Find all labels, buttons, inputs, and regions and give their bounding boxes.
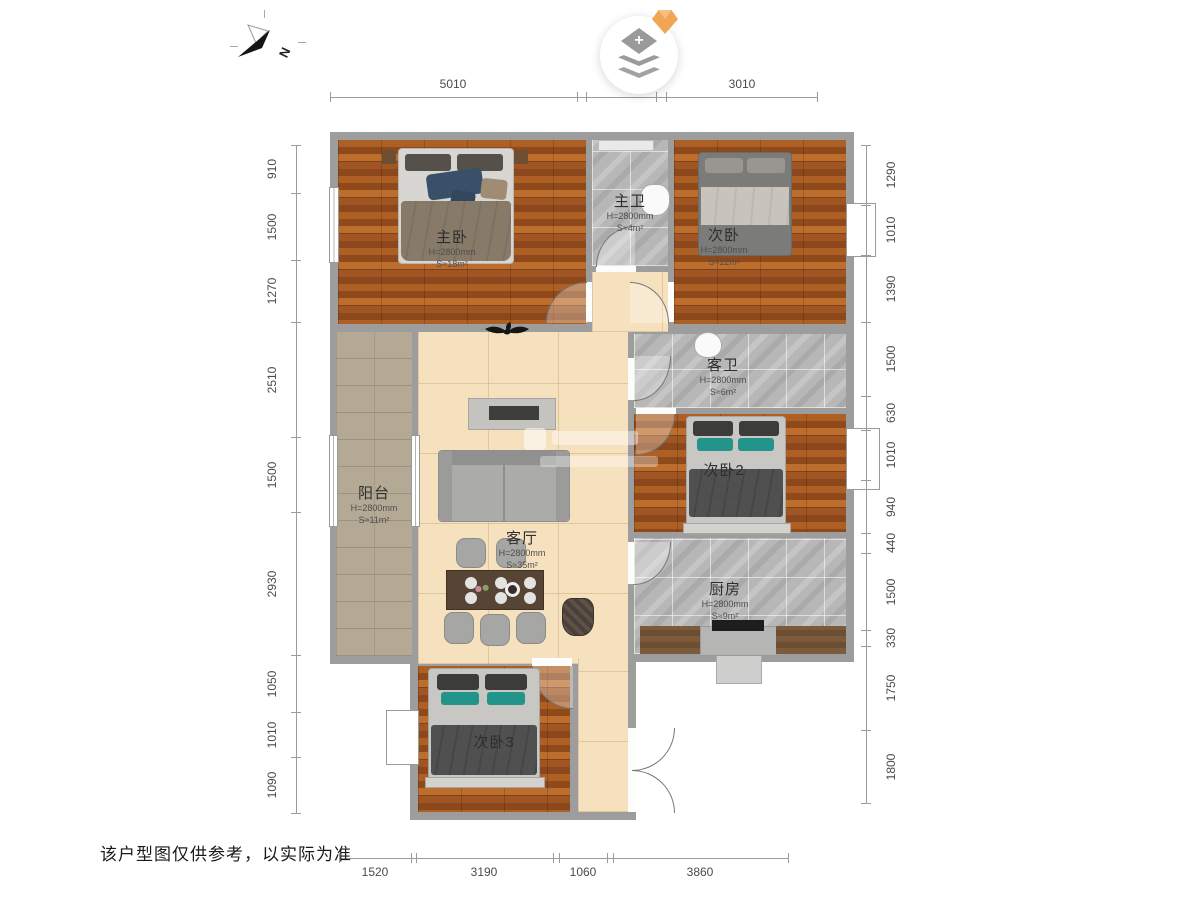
bath-shelf xyxy=(598,140,654,151)
sofa-arm xyxy=(439,451,452,521)
dim-right-11: 1800 xyxy=(884,754,898,781)
dim-top-0: 5010 xyxy=(440,77,467,91)
logo-badge[interactable]: + xyxy=(600,16,678,94)
cushion xyxy=(480,178,508,201)
room-label-guest-bath: 客卫 H=2800mm S≈6m² xyxy=(700,354,747,398)
dim-right-9: 330 xyxy=(884,628,898,648)
room-area: S≈10m² xyxy=(701,492,748,504)
dim-left-1: 1500 xyxy=(265,214,279,241)
watermark-logo xyxy=(524,428,546,450)
ruler-top xyxy=(330,97,817,98)
room-height: H=2800mm xyxy=(499,548,546,560)
dining-chair xyxy=(516,612,546,644)
plus-icon: + xyxy=(634,33,643,49)
room-name: 客卫 xyxy=(700,354,747,375)
door-gap-bedroom2 xyxy=(668,282,674,322)
pillow xyxy=(405,154,451,171)
room-area: S≈4m² xyxy=(607,223,654,235)
room-label-balcony: 阳台 H=2800mm S≈11m² xyxy=(351,482,398,526)
dim-right-4: 630 xyxy=(884,403,898,423)
appliance-box xyxy=(716,654,762,684)
room-name: 次卧2 xyxy=(701,459,748,480)
entry-floor xyxy=(578,658,628,812)
pillow-teal xyxy=(697,438,733,451)
room-label-living: 客厅 H=2800mm S≈35m² xyxy=(499,527,546,571)
dim-left-0: 910 xyxy=(265,159,279,179)
room-area: S≈18m² xyxy=(429,259,476,271)
room-height: H=2800mm xyxy=(429,247,476,259)
dim-right-10: 1750 xyxy=(884,675,898,702)
dim-bottom-0: 1520 xyxy=(362,865,389,879)
dining-chair xyxy=(480,614,510,646)
tv xyxy=(489,406,539,420)
room-label-bedroom3: 次卧3 H=2800mm S≈10m² xyxy=(471,731,518,775)
door-gap-bedroom3 xyxy=(532,658,572,666)
dining-chair xyxy=(444,612,474,644)
dim-bottom-1: 3190 xyxy=(471,865,498,879)
floor-plan-page: 主卧 H=2800mm S≈18m² 主卫 H=2800mm S≈4m² 次卧 … xyxy=(0,0,1200,900)
room-area: S≈35m² xyxy=(499,560,546,572)
pillow xyxy=(705,158,743,173)
dim-right-5: 1010 xyxy=(884,442,898,469)
room-height: H=2800mm xyxy=(351,503,398,515)
footboard xyxy=(425,777,545,788)
dim-right-2: 1390 xyxy=(884,276,898,303)
dim-left-7: 1010 xyxy=(265,722,279,749)
dim-right-8: 1500 xyxy=(884,579,898,606)
pillow xyxy=(437,674,479,690)
pillow xyxy=(485,674,527,690)
dim-right-3: 1500 xyxy=(884,346,898,373)
dining-table xyxy=(446,570,544,610)
pillow xyxy=(739,421,779,436)
room-height: H=2800mm xyxy=(701,245,748,257)
pillow-teal xyxy=(738,438,774,451)
door-arc-entrance-bottom xyxy=(632,770,675,813)
room-height: H=2800mm xyxy=(471,752,518,764)
bay-window-bedroom3 xyxy=(386,710,419,765)
window-balcony-left xyxy=(329,435,338,527)
dim-bottom-2: 1060 xyxy=(570,865,597,879)
pillow xyxy=(693,421,733,436)
ceiling-fan-icon xyxy=(484,322,530,342)
dim-right-7: 440 xyxy=(884,533,898,553)
bay-window-bedroom2 xyxy=(846,203,876,257)
room-area: S≈10m² xyxy=(471,764,518,776)
dim-left-4: 1500 xyxy=(265,462,279,489)
dim-right-1: 1010 xyxy=(884,217,898,244)
window-balcony-partition xyxy=(411,435,420,527)
pillow xyxy=(747,158,785,173)
room-height: H=2800mm xyxy=(700,375,747,387)
dim-left-5: 2930 xyxy=(265,571,279,598)
north-arrow-icon xyxy=(234,21,298,70)
room-label-bedroom2b: 次卧2 H=2800mm S≈10m² xyxy=(701,459,748,503)
room-area: S≈9m² xyxy=(702,611,749,623)
room-height: H=2800mm xyxy=(701,480,748,492)
dim-right-6: 940 xyxy=(884,497,898,517)
table-flowers xyxy=(473,583,491,595)
ruler-bottom xyxy=(339,858,788,859)
window-master-left xyxy=(329,187,339,263)
tv-console xyxy=(468,398,556,430)
kitchen-counter-right xyxy=(776,626,846,654)
nightstand xyxy=(514,150,528,164)
door-arc-entrance-top xyxy=(632,728,675,771)
room-area: S≈6m² xyxy=(700,387,747,399)
watermark-text-bar xyxy=(552,431,638,445)
room-name: 主卧 xyxy=(429,226,476,247)
room-label-kitchen: 厨房 H=2800mm S≈9m² xyxy=(702,578,749,622)
ruler-right xyxy=(866,145,867,803)
footboard xyxy=(683,523,791,534)
room-label-master: 主卧 H=2800mm S≈18m² xyxy=(429,226,476,270)
room-area: S≈12m² xyxy=(701,257,748,269)
sofa-seam xyxy=(503,465,505,521)
dim-top-1: 3010 xyxy=(729,77,756,91)
pillow-teal xyxy=(441,692,479,705)
room-height: H=2800mm xyxy=(607,211,654,223)
dim-bottom-3: 3860 xyxy=(687,865,714,879)
compass: N xyxy=(222,5,322,75)
dim-right-0: 1290 xyxy=(884,162,898,189)
room-name: 次卧 xyxy=(701,224,748,245)
room-name: 厨房 xyxy=(702,578,749,599)
room-height: H=2800mm xyxy=(702,599,749,611)
dim-left-8: 1090 xyxy=(265,772,279,799)
kitchen-counter-left xyxy=(640,626,700,654)
dim-left-3: 2510 xyxy=(265,367,279,394)
dining-chair xyxy=(456,538,486,568)
room-name: 客厅 xyxy=(499,527,546,548)
disclaimer-text: 该户型图仅供参考，以实际为准 xyxy=(100,840,352,865)
room-name: 主卫 xyxy=(607,190,654,211)
blanket xyxy=(701,187,789,225)
room-label-master-bath: 主卫 H=2800mm S≈4m² xyxy=(607,190,654,234)
dim-left-2: 1270 xyxy=(265,278,279,305)
nightstand xyxy=(382,150,396,164)
watermark-text-bar xyxy=(540,456,658,467)
pillow-teal xyxy=(487,692,525,705)
room-label-bedroom2: 次卧 H=2800mm S≈12m² xyxy=(701,224,748,268)
plant-basket xyxy=(562,598,594,636)
gem-icon xyxy=(652,10,678,34)
room-name: 次卧3 xyxy=(471,731,518,752)
dim-left-6: 1050 xyxy=(265,671,279,698)
food xyxy=(508,585,517,594)
room-name: 阳台 xyxy=(351,482,398,503)
room-area: S≈11m² xyxy=(351,515,398,527)
